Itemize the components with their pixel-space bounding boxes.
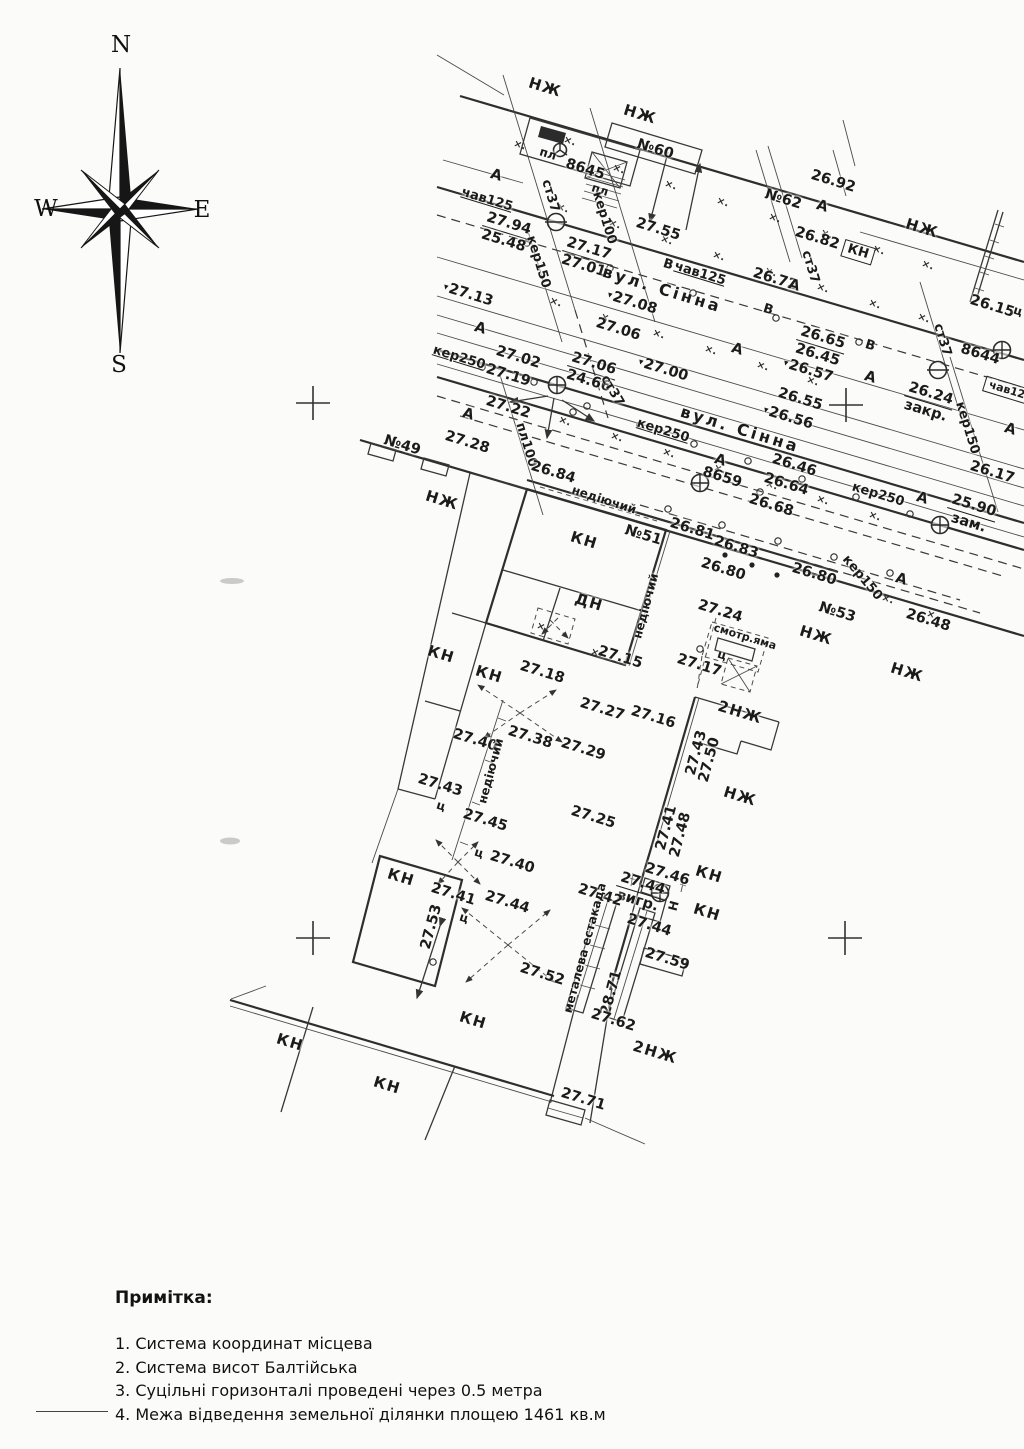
map-label: кер150: [524, 234, 553, 290]
note-item-3: 3. Суцільні горизонталі проведені через …: [115, 1379, 675, 1403]
map-label: ▾27.13: [441, 280, 495, 310]
map-label: НЖ: [423, 489, 460, 514]
map-label: 27.62: [589, 1007, 637, 1035]
map-label: А: [893, 571, 908, 589]
map-label: 26.80: [699, 556, 747, 584]
map-label: 26.81: [668, 516, 716, 544]
map-label: 26.68: [747, 492, 795, 520]
map-label: 26.82: [793, 225, 841, 253]
map-label: 8645: [563, 157, 606, 183]
map-label: 2НЖ: [631, 1039, 679, 1067]
map-label: 27.22: [484, 394, 532, 422]
map-label: №49: [382, 433, 422, 459]
map-label: №62: [763, 187, 803, 213]
map-label: Н: [667, 900, 682, 913]
map-label: 27.40: [488, 849, 536, 877]
map-label: пл: [538, 145, 558, 162]
map-label: А: [712, 452, 727, 470]
map-label: НЖ: [721, 785, 758, 810]
note-item-1: 1. Система координат місцева: [115, 1332, 675, 1356]
map-label: ц: [435, 799, 447, 814]
map-label: 27.45: [461, 807, 509, 835]
map-label: 26.48: [904, 607, 952, 635]
map-label: 27.59: [643, 946, 691, 974]
map-label: 26.83: [712, 534, 760, 562]
map-label: КН: [473, 663, 504, 686]
map-label: 27.18: [518, 659, 566, 687]
map-label: 27.15: [596, 644, 644, 672]
map-label: А: [1002, 421, 1017, 439]
map-label: ▾27.00: [636, 355, 690, 385]
map-label: НЖ: [621, 103, 658, 128]
map-label: КН: [425, 643, 456, 666]
boundary-legend-line: [36, 1411, 108, 1412]
map-label: ц: [458, 911, 470, 926]
map-label: 27.38: [506, 724, 554, 752]
map-label: 26.15: [968, 293, 1016, 321]
map-label: ц: [716, 648, 728, 663]
map-label: 27.44: [483, 889, 531, 917]
map-label: КН: [568, 529, 599, 552]
map-label: 26.80: [790, 561, 838, 589]
map-label: ст37: [539, 178, 562, 214]
map-label: В: [761, 302, 774, 318]
note-item-2: 2. Система висот Балтійська: [115, 1356, 675, 1380]
map-label: КН: [840, 239, 875, 265]
map-label: А: [488, 167, 503, 185]
map-label: 27.28: [443, 429, 491, 457]
map-label: 27.29: [559, 736, 607, 764]
map-label: КН: [457, 1009, 488, 1032]
map-label: НЖ: [903, 217, 940, 242]
map-label: КН: [274, 1031, 305, 1054]
map-label: 27.25: [569, 804, 617, 832]
map-label: недіючий: [631, 572, 660, 640]
map-label: 27.06: [594, 316, 642, 344]
map-label: НЖ: [797, 624, 834, 649]
map-label: ц: [473, 846, 485, 861]
map-label: А: [814, 198, 829, 216]
map-label: 27.44: [625, 912, 673, 940]
map-label: А: [472, 320, 487, 338]
map-label: 27.53: [419, 903, 446, 951]
map-label: НЖ: [526, 76, 563, 101]
map-label: металева естакада: [562, 882, 609, 1015]
map-label: ст37: [931, 322, 954, 358]
notes-block: Примітка: 1. Система координат місцева 2…: [115, 1288, 675, 1426]
map-label: КН: [385, 866, 416, 889]
map-label: 27.43: [416, 772, 464, 800]
map-label: 26.84: [529, 459, 577, 487]
map-label: кер100: [590, 190, 619, 246]
map-label: кер150: [839, 553, 884, 603]
map-label: 27.55: [634, 216, 682, 244]
map-label: А: [862, 369, 877, 387]
map-label: А: [460, 406, 475, 424]
map-label: КН: [371, 1074, 402, 1097]
map-label: 2НЖ: [716, 699, 764, 727]
map-label: 8644: [958, 342, 1001, 368]
map-label: недіючий: [570, 484, 638, 517]
map-label: 27.16: [629, 704, 677, 732]
notes-title: Примітка:: [115, 1288, 675, 1308]
map-label: 27.27: [578, 696, 626, 724]
map-label: чав12: [982, 376, 1024, 405]
elevation-fraction-label: 25.90зам.: [942, 492, 999, 539]
map-label: кер250: [850, 481, 906, 510]
elevation-fraction-label: 26.24закр.: [899, 380, 956, 427]
map-label: ц: [1012, 304, 1024, 319]
map-label: №51: [623, 523, 663, 549]
map-labels-layer: НЖНЖ№60пл8645плАчав12527.9425.48ст37кер1…: [0, 0, 1024, 1449]
map-label: 27.52: [518, 961, 566, 989]
map-label: ДН: [573, 591, 605, 615]
map-label: НЖ: [888, 661, 925, 686]
map-label: 27.71: [559, 1086, 607, 1114]
topographic-plan: N W E S: [0, 0, 1024, 1449]
map-label: 26.92: [809, 168, 857, 196]
map-label: кер250: [431, 344, 487, 373]
map-label: №53: [817, 600, 857, 626]
map-label: кер150: [953, 400, 982, 456]
map-label: №60: [635, 137, 675, 163]
note-item-4: 4. Межа відведення земельної ділянки пло…: [115, 1403, 675, 1427]
map-label: А: [729, 341, 744, 359]
map-label: КН: [691, 901, 722, 924]
map-label: ст37: [799, 249, 822, 285]
map-label: КН: [693, 863, 724, 886]
map-label: А: [914, 490, 929, 508]
map-label: В: [863, 338, 876, 354]
map-label: 26.17: [968, 459, 1016, 487]
